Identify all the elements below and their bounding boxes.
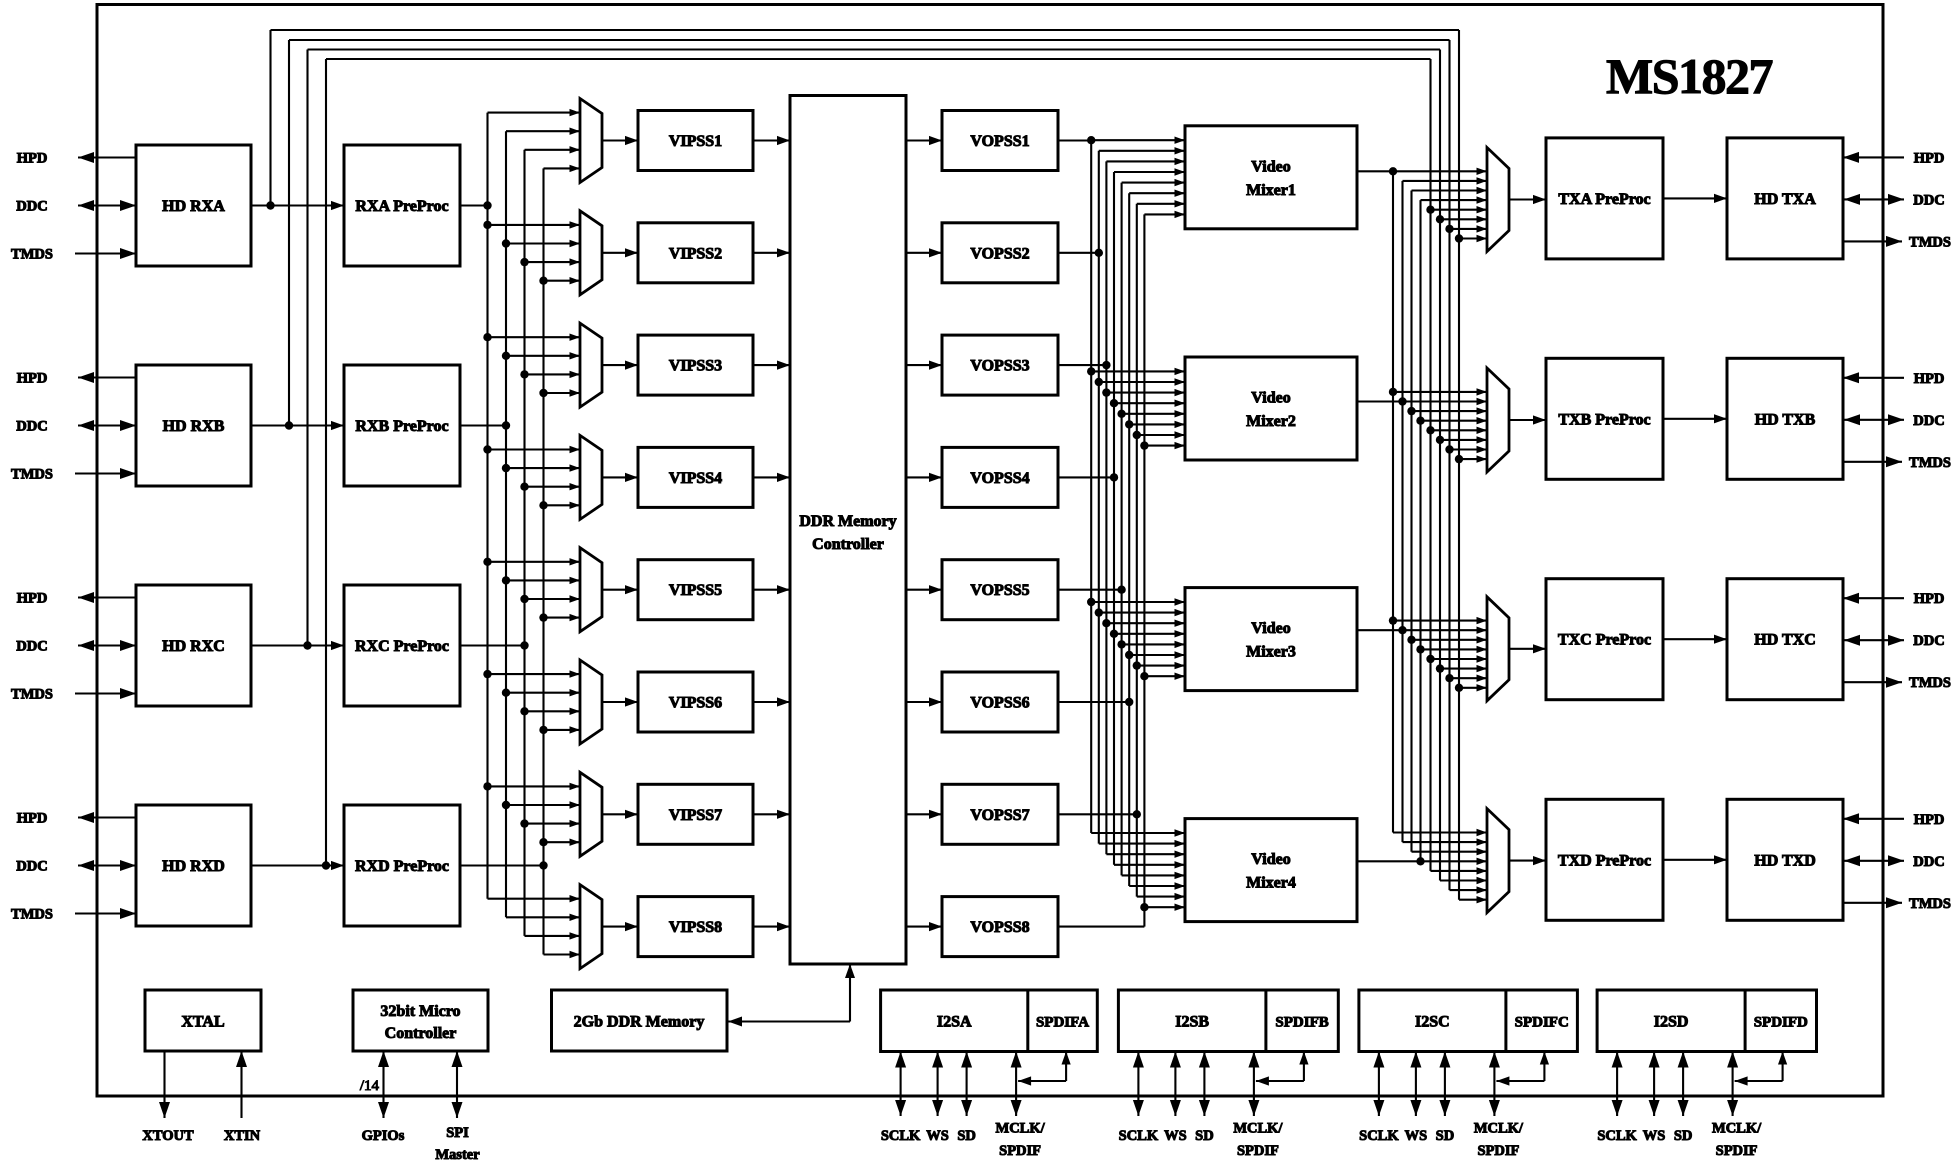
svg-text:HD RXC: HD RXC [162, 638, 225, 655]
svg-text:TMDS: TMDS [1909, 455, 1951, 471]
svg-text:DDC: DDC [1913, 633, 1944, 649]
svg-text:RXD PreProc: RXD PreProc [355, 858, 449, 875]
svg-text:VIPSS5: VIPSS5 [669, 582, 722, 599]
svg-text:Mixer2: Mixer2 [1246, 413, 1296, 430]
svg-text:32bit Micro: 32bit Micro [380, 1003, 460, 1020]
svg-text:TMDS: TMDS [1909, 896, 1951, 912]
svg-text:SPDIFB: SPDIFB [1275, 1015, 1328, 1031]
svg-text:HPD: HPD [17, 591, 48, 607]
svg-text:HD RXA: HD RXA [162, 198, 225, 215]
svg-text:TXA PreProc: TXA PreProc [1558, 191, 1650, 208]
svg-text:WS: WS [1405, 1128, 1428, 1144]
svg-text:DDC: DDC [1913, 413, 1944, 429]
svg-text:VIPSS8: VIPSS8 [669, 919, 722, 936]
svg-text:VIPSS6: VIPSS6 [669, 695, 722, 712]
svg-text:/14: /14 [360, 1078, 380, 1094]
svg-text:HD TXB: HD TXB [1755, 411, 1816, 428]
svg-text:HPD: HPD [1914, 371, 1945, 387]
svg-text:MCLK/: MCLK/ [1712, 1121, 1762, 1137]
svg-text:Mixer1: Mixer1 [1246, 182, 1296, 199]
svg-text:SD: SD [957, 1128, 976, 1144]
svg-text:RXA PreProc: RXA PreProc [355, 198, 448, 215]
svg-text:WS: WS [926, 1128, 949, 1144]
svg-text:SPDIFC: SPDIFC [1515, 1015, 1569, 1031]
svg-text:RXB PreProc: RXB PreProc [355, 418, 448, 435]
svg-text:Master: Master [435, 1147, 480, 1163]
svg-text:DDC: DDC [16, 639, 47, 655]
svg-text:MCLK/: MCLK/ [996, 1121, 1046, 1137]
svg-text:TMDS: TMDS [11, 907, 53, 923]
svg-text:HPD: HPD [17, 371, 48, 387]
svg-text:VIPSS3: VIPSS3 [669, 358, 722, 375]
svg-text:SPDIFD: SPDIFD [1754, 1015, 1808, 1031]
svg-text:HPD: HPD [17, 811, 48, 827]
svg-text:SCLK: SCLK [1359, 1128, 1399, 1144]
svg-text:Video: Video [1251, 158, 1290, 175]
svg-text:DDC: DDC [16, 859, 47, 875]
svg-text:SD: SD [1436, 1128, 1455, 1144]
svg-text:2Gb DDR Memory: 2Gb DDR Memory [574, 1014, 705, 1031]
svg-text:XTOUT: XTOUT [142, 1128, 194, 1144]
svg-text:DDR Memory: DDR Memory [799, 513, 896, 530]
svg-text:TXC PreProc: TXC PreProc [1558, 632, 1651, 649]
svg-text:WS: WS [1643, 1128, 1666, 1144]
svg-text:HD TXC: HD TXC [1754, 632, 1816, 649]
svg-text:VIPSS7: VIPSS7 [669, 807, 722, 824]
svg-text:DDC: DDC [1913, 192, 1944, 208]
svg-text:Mixer3: Mixer3 [1246, 644, 1296, 661]
svg-text:SPDIF: SPDIF [1237, 1143, 1279, 1159]
svg-text:Controller: Controller [812, 536, 884, 553]
svg-text:MCLK/: MCLK/ [1474, 1121, 1524, 1137]
svg-text:SPDIF: SPDIF [1477, 1143, 1519, 1159]
svg-text:DDC: DDC [1913, 854, 1944, 870]
svg-text:I2SD: I2SD [1654, 1014, 1689, 1031]
svg-text:VOPSS3: VOPSS3 [970, 358, 1029, 375]
svg-text:SD: SD [1674, 1128, 1693, 1144]
svg-text:SCLK: SCLK [881, 1128, 921, 1144]
svg-text:I2SC: I2SC [1415, 1014, 1450, 1031]
svg-text:DDC: DDC [16, 419, 47, 435]
svg-text:Video: Video [1251, 620, 1290, 637]
svg-text:VOPSS1: VOPSS1 [970, 133, 1029, 150]
svg-text:TXB PreProc: TXB PreProc [1558, 411, 1650, 428]
svg-text:DDC: DDC [16, 199, 47, 215]
svg-text:VOPSS2: VOPSS2 [970, 245, 1029, 262]
svg-text:SCLK: SCLK [1119, 1128, 1159, 1144]
svg-text:MCLK/: MCLK/ [1233, 1121, 1283, 1137]
svg-text:WS: WS [1164, 1128, 1187, 1144]
svg-text:HPD: HPD [17, 151, 48, 167]
svg-text:VIPSS2: VIPSS2 [669, 245, 722, 262]
svg-text:HPD: HPD [1914, 812, 1945, 828]
svg-text:SPDIF: SPDIF [999, 1143, 1041, 1159]
svg-text:Video: Video [1251, 390, 1290, 407]
svg-text:VIPSS4: VIPSS4 [669, 470, 722, 487]
svg-text:XTIN: XTIN [224, 1128, 261, 1144]
svg-text:RXC PreProc: RXC PreProc [355, 638, 449, 655]
svg-text:HD RXB: HD RXB [163, 418, 225, 435]
svg-text:HD TXA: HD TXA [1754, 191, 1816, 208]
svg-text:SPDIF: SPDIF [1716, 1143, 1758, 1159]
svg-text:Mixer4: Mixer4 [1246, 875, 1296, 892]
svg-text:HPD: HPD [1914, 150, 1945, 166]
svg-text:GPIOs: GPIOs [362, 1128, 405, 1144]
svg-text:VOPSS8: VOPSS8 [970, 919, 1029, 936]
svg-text:VOPSS6: VOPSS6 [970, 695, 1029, 712]
svg-text:SD: SD [1195, 1128, 1214, 1144]
svg-text:VOPSS7: VOPSS7 [970, 807, 1029, 824]
svg-text:XTAL: XTAL [181, 1014, 224, 1031]
svg-text:SPDIFA: SPDIFA [1036, 1015, 1089, 1031]
svg-text:I2SA: I2SA [937, 1014, 972, 1031]
svg-text:SCLK: SCLK [1597, 1128, 1637, 1144]
svg-text:SPI: SPI [446, 1125, 469, 1141]
svg-text:Controller: Controller [385, 1025, 457, 1042]
svg-text:TXD PreProc: TXD PreProc [1558, 852, 1651, 869]
svg-text:HPD: HPD [1914, 591, 1945, 607]
svg-text:TMDS: TMDS [1909, 234, 1951, 250]
svg-text:TMDS: TMDS [1909, 675, 1951, 691]
svg-text:TMDS: TMDS [11, 687, 53, 703]
svg-text:I2SB: I2SB [1175, 1014, 1209, 1031]
svg-text:MS1827: MS1827 [1606, 48, 1773, 104]
svg-text:VOPSS4: VOPSS4 [970, 470, 1029, 487]
svg-text:VIPSS1: VIPSS1 [669, 133, 722, 150]
svg-text:HD RXD: HD RXD [162, 858, 225, 875]
svg-text:Video: Video [1251, 851, 1290, 868]
svg-text:TMDS: TMDS [11, 467, 53, 483]
svg-text:VOPSS5: VOPSS5 [970, 582, 1029, 599]
svg-text:HD TXD: HD TXD [1754, 852, 1816, 869]
svg-text:TMDS: TMDS [11, 247, 53, 263]
